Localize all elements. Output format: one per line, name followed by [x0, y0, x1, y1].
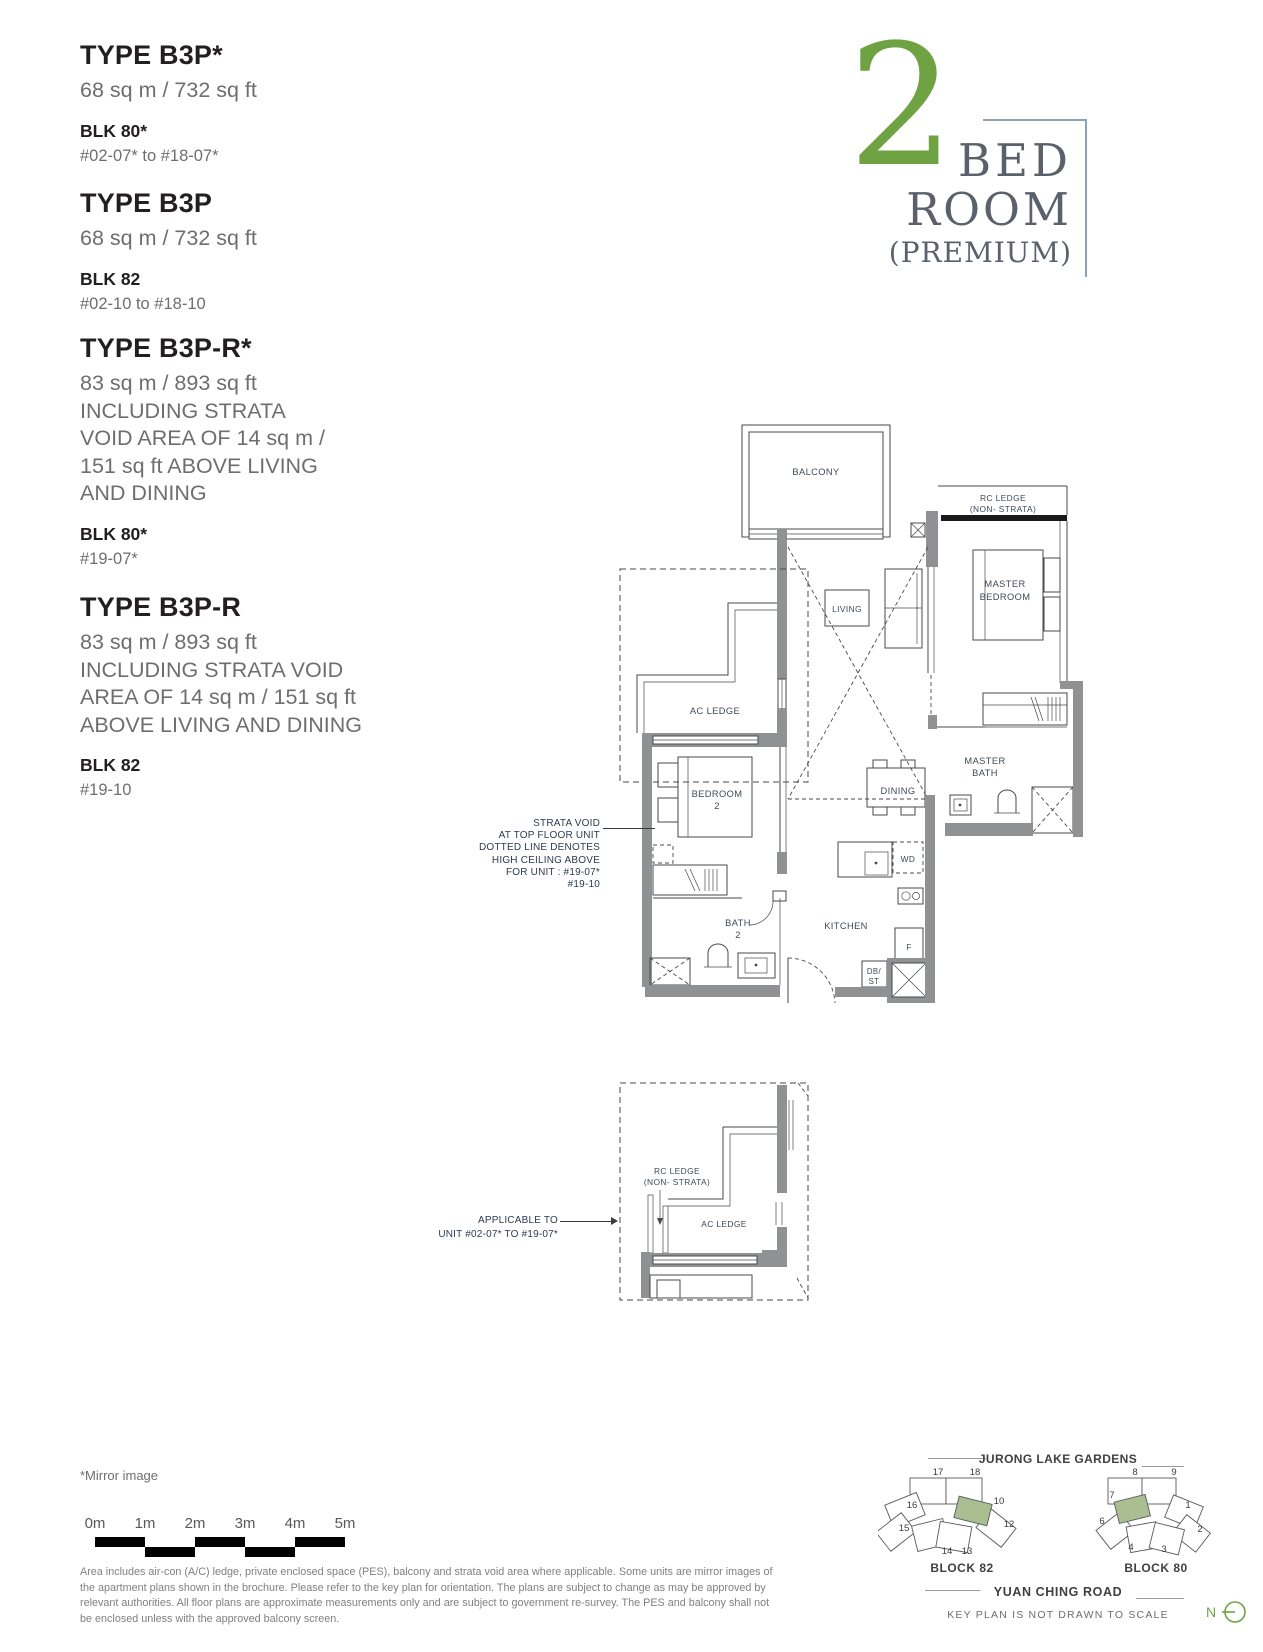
svg-text:7: 7	[1109, 1490, 1114, 1501]
unit-type-title: TYPE B3P*	[80, 40, 440, 71]
svg-text:18: 18	[970, 1467, 981, 1478]
svg-text:2: 2	[1197, 1524, 1202, 1535]
applicable-to-leader-line	[560, 1221, 612, 1222]
unit-type-block: BLK 80*	[80, 121, 440, 142]
strata-void-dashed-lines	[620, 547, 931, 799]
washer-dryer-label: WD	[901, 854, 916, 864]
unit-type-area: 83 sq m / 893 sq ft INCLUDING STRATA VOI…	[80, 629, 440, 739]
svg-text:2: 2	[714, 801, 720, 811]
lower-detail-plan-svg: RC LEDGE (NON- STRATA) AC LEDGE	[560, 1080, 820, 1305]
svg-text:2: 2	[735, 930, 741, 940]
disclaimer-text: Area includes air-con (A/C) ledge, priva…	[80, 1565, 774, 1627]
applicable-to-annotation: APPLICABLE TO UNIT #02-07* TO #19-07*	[422, 1214, 558, 1241]
unit-type-b3p: TYPE B3P 68 sq m / 732 sq ft BLK 82 #02-…	[80, 188, 440, 314]
svg-text:1: 1	[1185, 1500, 1190, 1511]
keyplan-block80-label: BLOCK 80	[1096, 1561, 1216, 1575]
svg-text:BEDROOM: BEDROOM	[980, 592, 1031, 602]
scale-bar: 0m 1m 2m 3m 4m 5m	[70, 1515, 370, 1560]
rc-ledge-area: RC LEDGE (NON- STRATA)	[938, 486, 1067, 521]
unit-type-block: BLK 82	[80, 755, 440, 776]
bedroom2-room: BEDROOM 2	[642, 733, 787, 987]
unit-type-title: TYPE B3P-R	[80, 592, 440, 623]
scale-segment	[245, 1547, 295, 1557]
unit-type-block: BLK 80*	[80, 524, 440, 545]
bath2-room: BATH 2	[645, 891, 786, 997]
svg-text:8: 8	[1132, 1467, 1137, 1478]
unit-type-area: 68 sq m / 732 sq ft	[80, 77, 440, 105]
unit-type-area: 68 sq m / 732 sq ft	[80, 225, 440, 253]
keyplan-gardens-label: JURONG LAKE GARDENS	[930, 1452, 1186, 1466]
svg-text:3: 3	[1161, 1544, 1166, 1555]
living-label: LIVING	[832, 604, 862, 614]
svg-text:15: 15	[899, 1523, 910, 1534]
logo-premium: (PREMIUM)	[876, 235, 1072, 271]
lower-ac-ledge-label: AC LEDGE	[701, 1219, 747, 1229]
unit-type-title: TYPE B3P-R*	[80, 333, 440, 364]
keyplan-block82-map: 17 18 16 10 15 12 14 13	[878, 1466, 1028, 1558]
fridge-label: F	[906, 942, 912, 952]
balcony-label: BALCONY	[792, 467, 839, 477]
unit-type-b3p-mirror: TYPE B3P* 68 sq m / 732 sq ft BLK 80* #0…	[80, 40, 440, 166]
bath2-label: BATH	[725, 918, 751, 928]
svg-text:12: 12	[1004, 1519, 1015, 1530]
svg-text:6: 6	[1099, 1516, 1104, 1527]
scale-segment	[295, 1537, 345, 1547]
dining-area: DINING	[867, 760, 925, 815]
strata-void-leader-line	[603, 828, 655, 829]
brochure-page: { "colors": {"accent_green":"#6FA243","k…	[0, 0, 1263, 1652]
svg-text:16: 16	[907, 1500, 918, 1511]
svg-text:4: 4	[1128, 1542, 1133, 1553]
unit-type-b3pr: TYPE B3P-R 83 sq m / 893 sq ft INCLUDING…	[80, 592, 440, 800]
north-label: N	[1206, 1604, 1216, 1620]
upper-walls	[777, 511, 938, 735]
svg-text:14: 14	[942, 1546, 953, 1557]
applicable-to-arrowhead	[611, 1217, 618, 1225]
logo-corner-line-horizontal	[983, 119, 1087, 121]
kitchen-label: KITCHEN	[824, 921, 868, 931]
rc-ledge-label: RC LEDGE	[980, 493, 1026, 503]
keyplan-block82-label: BLOCK 82	[902, 1561, 1022, 1575]
svg-text:17: 17	[933, 1467, 944, 1478]
keyplan-scale-note: KEY PLAN IS NOT DRAWN TO SCALE	[910, 1609, 1206, 1621]
balcony-room: BALCONY	[742, 425, 890, 539]
db-st-label: DB/	[867, 967, 882, 976]
dining-label: DINING	[881, 786, 916, 796]
svg-text:(NON- STRATA): (NON- STRATA)	[970, 504, 1036, 514]
logo-room: ROOM	[876, 185, 1072, 235]
logo-corner-line-vertical	[1085, 119, 1087, 277]
strata-void-annotation: STRATA VOID AT TOP FLOOR UNIT DOTTED LIN…	[455, 818, 600, 891]
svg-text:10: 10	[994, 1496, 1005, 1507]
living-room: LIVING	[825, 569, 922, 648]
ac-ledge-label: AC LEDGE	[690, 706, 740, 716]
keyplan-road-label: YUAN CHING ROAD	[930, 1585, 1186, 1599]
bedroom2-label: BEDROOM	[692, 789, 743, 799]
lower-plan-labels: RC LEDGE (NON- STRATA) AC LEDGE	[644, 1166, 747, 1229]
master-bath-room: MASTER BATH	[937, 689, 1083, 837]
ac-ledge-area: AC LEDGE	[637, 603, 777, 733]
keyplan-highlighted-unit-10	[954, 1496, 992, 1526]
svg-text:BATH: BATH	[972, 768, 998, 778]
logo-bed: BED	[876, 137, 1072, 185]
unit-type-units: #02-07* to #18-07*	[80, 147, 440, 166]
svg-text:(NON- STRATA): (NON- STRATA)	[644, 1177, 710, 1187]
master-bedroom-room: MASTER BEDROOM	[928, 521, 1083, 729]
north-compass-icon	[1221, 1599, 1247, 1625]
unit-type-title: TYPE B3P	[80, 188, 440, 219]
svg-text:9: 9	[1171, 1467, 1176, 1478]
master-bedroom-label: MASTER	[984, 579, 1025, 589]
master-bath-label: MASTER	[964, 756, 1005, 766]
svg-text:ST: ST	[869, 977, 880, 986]
keyplan-block80-map: 8 9 7 1 6 2 4 3	[1072, 1466, 1212, 1558]
scale-segment	[145, 1547, 195, 1557]
logo-wordmark: BED ROOM (PREMIUM)	[876, 137, 1072, 271]
unit-type-area: 83 sq m / 893 sq ft INCLUDING STRATA VOI…	[80, 370, 440, 508]
scale-segment	[95, 1537, 145, 1547]
lower-plan-walls	[641, 1085, 793, 1298]
unit-type-units: #19-10	[80, 781, 440, 800]
unit-type-b3pr-mirror: TYPE B3P-R* 83 sq m / 893 sq ft INCLUDIN…	[80, 333, 440, 569]
unit-type-block: BLK 82	[80, 269, 440, 290]
svg-text:13: 13	[962, 1546, 973, 1557]
floor-plan-svg: BALCONY RC LEDGE (NON- STRATA) MASTER BE…	[565, 405, 1085, 1005]
lower-rc-ledge-label: RC LEDGE	[654, 1166, 700, 1176]
kitchen-area: WD F DB/ ST KITCHEN	[788, 795, 935, 1003]
mirror-image-note: *Mirror image	[80, 1468, 158, 1483]
scale-segment	[195, 1537, 245, 1547]
unit-type-units: #02-10 to #18-10	[80, 295, 440, 314]
unit-type-units: #19-07*	[80, 550, 440, 569]
